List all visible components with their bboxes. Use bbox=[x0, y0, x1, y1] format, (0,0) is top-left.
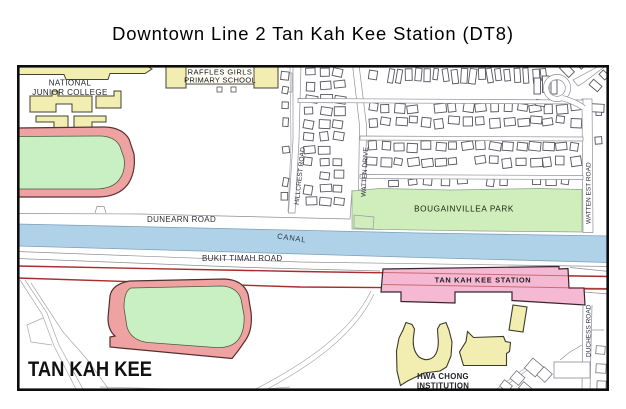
svg-text:BUKIT TIMAH ROAD: BUKIT TIMAH ROAD bbox=[202, 254, 283, 263]
svg-text:PRIMARY SCHOOL: PRIMARY SCHOOL bbox=[184, 76, 256, 85]
svg-text:TAN KAH KEE STATION: TAN KAH KEE STATION bbox=[435, 276, 532, 285]
svg-text:DUNEARN ROAD: DUNEARN ROAD bbox=[147, 215, 216, 224]
svg-text:BOUGAINVILLEA PARK: BOUGAINVILLEA PARK bbox=[414, 205, 514, 214]
svg-text:HWA CHONG: HWA CHONG bbox=[417, 372, 469, 381]
svg-text:TAN KAH KEE: TAN KAH KEE bbox=[28, 358, 152, 381]
svg-text:WATTEN EST ROAD: WATTEN EST ROAD bbox=[586, 162, 593, 224]
svg-text:NATIONAL: NATIONAL bbox=[49, 79, 92, 88]
svg-text:JUNIOR COLLEGE: JUNIOR COLLEGE bbox=[32, 88, 107, 97]
svg-text:DUCHESS ROAD: DUCHESS ROAD bbox=[586, 304, 593, 357]
